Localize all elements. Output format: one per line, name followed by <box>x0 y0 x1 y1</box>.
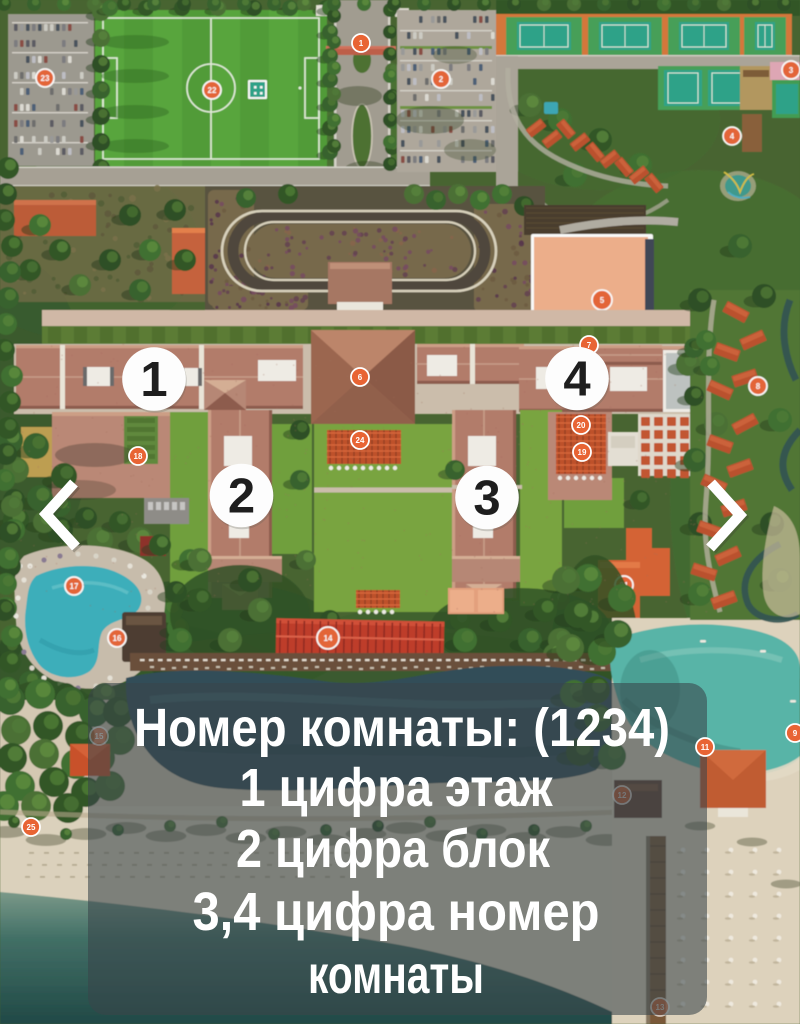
svg-text:2: 2 <box>228 470 255 524</box>
svg-text:1: 1 <box>140 353 167 407</box>
svg-text:19: 19 <box>578 448 587 457</box>
svg-text:24: 24 <box>356 436 365 445</box>
svg-text:2 цифра блок: 2 цифра блок <box>236 819 551 879</box>
svg-text:1: 1 <box>359 39 364 48</box>
svg-text:Номер комнаты: (1234): Номер комнаты: (1234) <box>134 698 670 758</box>
svg-text:4: 4 <box>563 353 590 407</box>
svg-text:9: 9 <box>793 729 798 738</box>
svg-text:11: 11 <box>701 743 710 752</box>
svg-text:6: 6 <box>358 373 363 382</box>
svg-text:25: 25 <box>27 823 36 832</box>
svg-text:комнаты: комнаты <box>308 945 484 1005</box>
svg-text:20: 20 <box>577 421 586 430</box>
svg-text:3,4 цифра номер: 3,4 цифра номер <box>193 882 600 942</box>
svg-text:1 цифра этаж: 1 цифра этаж <box>240 758 554 818</box>
svg-text:3: 3 <box>473 472 500 526</box>
svg-text:18: 18 <box>134 452 143 461</box>
